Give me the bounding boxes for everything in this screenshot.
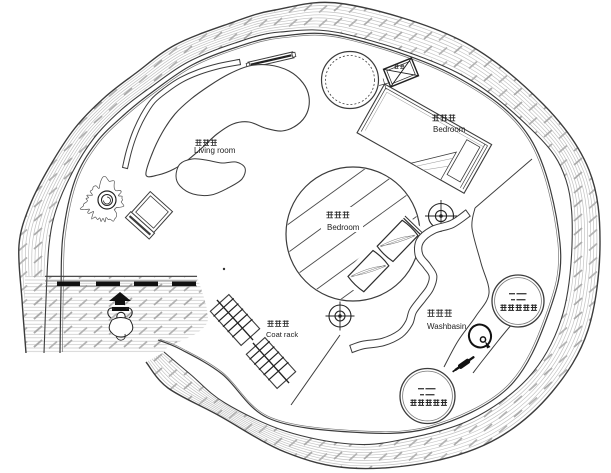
svg-text:Washbasin: Washbasin: [427, 322, 466, 331]
svg-text:Coat rack: Coat rack: [266, 330, 298, 339]
svg-text:Bedroom: Bedroom: [327, 223, 360, 232]
svg-text:Bedroom: Bedroom: [433, 125, 466, 134]
svg-text:Living room: Living room: [194, 146, 236, 155]
